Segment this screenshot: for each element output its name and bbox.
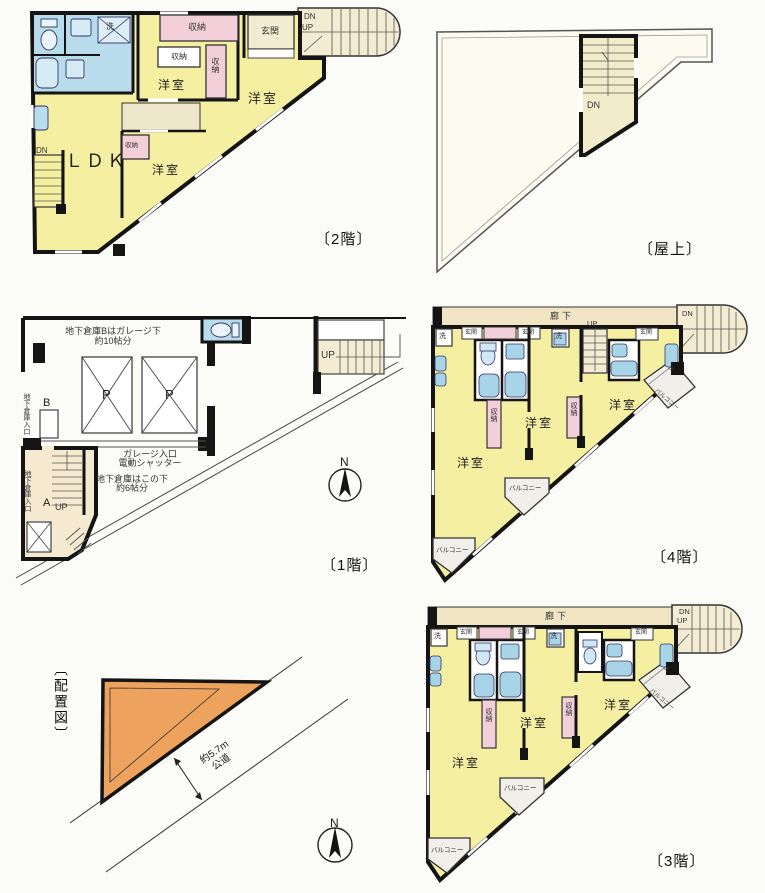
stairs-icon — [34, 150, 66, 214]
tub-icon — [474, 674, 494, 697]
basement-entrance-label: 地下倉庫入口 — [23, 393, 30, 435]
floor1-plan: 地下倉庫Bはガレージ下 約10帖分 P P B 地下倉庫入口 ガレージ入口 電動… — [10, 310, 420, 590]
sink-icon — [607, 644, 622, 657]
wall-block — [428, 607, 437, 627]
site-plan: 〔配置図〕 約5.7m 公道 N — [30, 610, 400, 893]
toilet-room — [202, 316, 251, 344]
entrance-label: 玄関 — [460, 630, 472, 636]
western-room-label: 洋室 — [609, 399, 637, 411]
western-room-label: 洋室 — [248, 92, 278, 105]
electric-shutter-label: 電動シャッター — [98, 458, 202, 468]
north-label: N — [330, 817, 339, 829]
storage-label: 収納 — [171, 53, 187, 61]
floor4-drawing — [425, 300, 765, 590]
bathroom — [578, 632, 602, 672]
floor3-plan: 廊下 DN UP 洗 玄関 玄関 洗 玄関 収納 収納 洋室 洋室 洋室 バルコ… — [420, 600, 765, 893]
sink-icon — [71, 19, 91, 36]
rooftop-caption: 〔屋上〕 — [638, 242, 702, 257]
sink-icon — [34, 106, 48, 130]
washer-icon — [66, 60, 84, 78]
wash-label: 洗 — [550, 633, 557, 640]
floor1-drawing — [10, 310, 420, 590]
dn-label: DN — [36, 147, 48, 155]
toilet-icon — [41, 19, 57, 50]
parking-label: P — [165, 388, 174, 401]
up-label: UP — [587, 320, 597, 328]
balcony-label: バルコニー — [436, 548, 468, 555]
floor4-caption: 〔4階〕 — [651, 550, 708, 565]
entrance-label: 玄関 — [517, 630, 529, 636]
up-label: UP — [302, 24, 313, 32]
toilet-icon — [475, 643, 491, 665]
sink-icon — [501, 644, 519, 659]
floor3-caption: 〔3階〕 — [648, 854, 705, 869]
note-basement-under-line2: 約6帖分 — [80, 483, 184, 493]
hatch-box-icon — [27, 522, 51, 552]
sink-icon — [435, 373, 446, 386]
bathtub-icon — [98, 17, 130, 43]
storage-label: 収納 — [485, 708, 492, 722]
rooftop-drawing — [425, 0, 765, 290]
bathroom — [475, 340, 529, 400]
bathroom — [32, 13, 133, 93]
corridor-label: 廊下 — [545, 612, 569, 621]
entrance-label: 玄関 — [640, 330, 652, 336]
stairwell — [581, 36, 636, 155]
dn-label: DN — [304, 13, 316, 21]
tub-icon — [500, 672, 521, 697]
siteplan-caption: 〔配置図〕 — [54, 662, 68, 742]
note-basement-b-line1: 地下倉庫Bはガレージ下 — [48, 326, 178, 336]
balcony-label: バルコニー — [431, 848, 463, 855]
sink-icon — [612, 344, 627, 357]
rooftop-plan: DN 〔屋上〕 — [425, 0, 765, 290]
western-room-label: 洋室 — [520, 717, 548, 729]
stairs-icon — [583, 329, 607, 373]
tub-icon — [505, 372, 526, 397]
sink-icon — [506, 344, 524, 359]
note-basement-b-line2: 約10帖分 — [48, 336, 178, 346]
storage-label: 収納 — [188, 23, 206, 32]
floor2-caption: 〔2階〕 — [315, 232, 372, 247]
tub-icon — [36, 58, 58, 88]
sink-icon — [435, 356, 446, 371]
up-label: UP — [677, 617, 687, 625]
western-room-label: 洋室 — [525, 417, 553, 429]
dn-label: DN — [587, 101, 600, 110]
toilet-icon — [211, 323, 239, 337]
storage-label: 収納 — [570, 402, 577, 416]
toilet-icon — [583, 640, 597, 664]
bathroom — [470, 640, 524, 700]
tub-icon — [606, 661, 632, 676]
dn-label: DN — [679, 608, 690, 616]
bathroom — [604, 640, 634, 680]
wall-block — [113, 244, 125, 256]
storage-label: 収納 — [490, 408, 497, 422]
compass-icon — [318, 827, 352, 862]
floor3-drawing — [420, 600, 760, 890]
storage-label: 収納 — [565, 702, 572, 716]
entrance-label: 玄関 — [522, 330, 534, 336]
wash-label: 洗 — [439, 333, 446, 340]
wash-label: 洗 — [106, 23, 114, 31]
western-room-label: 洋室 — [158, 79, 186, 91]
balcony-label: バルコニー — [504, 786, 536, 793]
bathroom — [609, 340, 639, 380]
entrance-label: 玄関 — [261, 27, 279, 36]
compass-icon — [329, 468, 361, 501]
parking-label: P — [102, 388, 111, 401]
western-room-label: 洋室 — [152, 164, 180, 176]
basement-entrance-b — [40, 410, 58, 438]
ldk-label: ＬＤＫ — [65, 152, 128, 170]
up-label: UP — [321, 351, 335, 361]
storage-label: 収納 — [125, 143, 138, 150]
floorplan-sheet: 洗 収納 収納 収納 玄関 洋室 洋室 洋室 ＬＤＫ 収納 DN DN UP 〔… — [0, 0, 765, 893]
tub-icon — [611, 361, 637, 376]
tub-icon — [479, 374, 499, 397]
entrance-label: 玄関 — [465, 330, 477, 336]
floor2-plan: 洗 収納 収納 収納 玄関 洋室 洋室 洋室 ＬＤＫ 収納 DN DN UP 〔… — [10, 0, 430, 290]
entrance-label: 玄関 — [635, 630, 647, 636]
wall-block — [433, 307, 442, 327]
floor1-caption: 〔1階〕 — [321, 558, 378, 573]
western-room-label: 洋室 — [457, 457, 485, 469]
north-label: N — [340, 456, 349, 468]
wash-label: 洗 — [555, 333, 562, 340]
corridor-label: 廊下 — [550, 312, 574, 321]
floor4-plan: 廊下 DN UP 洗 玄関 玄関 洗 玄関 収納 収納 洋室 洋室 洋室 バルコ… — [425, 300, 765, 590]
sink-icon — [430, 656, 441, 671]
toilet-icon — [480, 343, 496, 365]
sink-icon — [430, 673, 441, 686]
unit-a-label: A — [43, 498, 50, 509]
up-label: UP — [55, 503, 68, 512]
wash-label: 洗 — [434, 633, 441, 640]
western-room-label: 洋室 — [604, 699, 632, 711]
unit-b-label: B — [43, 398, 50, 409]
roof-outline — [437, 29, 712, 272]
western-room-label: 洋室 — [452, 757, 480, 769]
balcony-label: バルコニー — [509, 486, 541, 493]
storage-label: 収納 — [211, 57, 219, 73]
basement-entrance-label: 地下倉庫入口 — [24, 470, 31, 512]
dn-label: DN — [682, 310, 693, 318]
